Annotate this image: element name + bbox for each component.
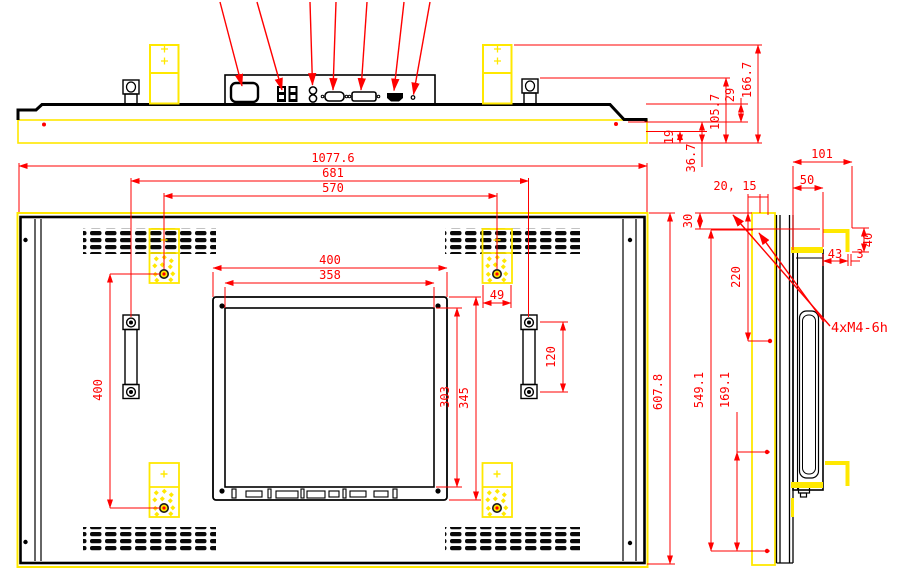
- edge-screw: [23, 540, 27, 544]
- top-view: 19 36.7 29 105.7 166.7: [18, 2, 762, 172]
- dim-bar-height: 29: [723, 88, 737, 102]
- dim-hook-height: 40: [861, 233, 875, 247]
- usb-ports: [277, 86, 298, 102]
- vesa-bracket: [483, 463, 513, 517]
- handle-bracket: [521, 315, 537, 399]
- handle-bracket: [123, 315, 139, 399]
- dim-overall-width: 1077.6: [311, 151, 354, 165]
- dim-handle-pitch: 120: [544, 346, 558, 368]
- rear-view: 1077.6 681 570 400 358 49 400 303: [18, 151, 676, 567]
- bezel-profile: [752, 213, 775, 565]
- connector-panel: [225, 75, 435, 105]
- dim-hook-thickness: 3: [856, 247, 863, 261]
- technical-drawing-page: 19 36.7 29 105.7 166.7: [0, 0, 898, 576]
- chassis-profile: [793, 250, 823, 497]
- reference-dot: [614, 122, 618, 126]
- dim-vesa-vertical: 400: [91, 379, 105, 401]
- dim-vesa-span: 570: [322, 181, 344, 195]
- dim-step-height: 19: [662, 130, 676, 144]
- dim-bracket-offset: 49: [490, 288, 504, 302]
- dim-hook-pitch: 169.1: [718, 372, 732, 408]
- screw-spec-note: 4xM4-6h: [831, 320, 888, 336]
- vent-grille: [83, 527, 216, 553]
- reset-hole: [411, 96, 415, 100]
- hdmi-port: [387, 93, 403, 102]
- bezel-strip: [18, 120, 647, 143]
- dim-depth-total: 101: [811, 147, 833, 161]
- edge-screw: [628, 541, 632, 545]
- dim-cutout-height: 345: [457, 387, 471, 409]
- dim-handle-span: 681: [322, 166, 344, 180]
- dim-port-depth: 105.7: [708, 94, 722, 130]
- top-mount-bracket: [150, 45, 179, 104]
- top-handle-lug: [522, 79, 538, 104]
- dim-panel-width: 358: [319, 268, 341, 282]
- monitor-dimension-drawing: 19 36.7 29 105.7 166.7: [0, 0, 898, 576]
- connector-callout-arrows: [220, 2, 430, 95]
- lcd-active-area: [225, 308, 434, 487]
- dim-panel-height: 303: [438, 386, 452, 408]
- dim-hook-span: 220: [729, 266, 743, 288]
- dim-cutout-width: 400: [319, 253, 341, 267]
- dim-chassis-depth: 50: [800, 173, 814, 187]
- dim-hook-width: 43: [828, 247, 842, 261]
- edge-screw: [23, 238, 27, 242]
- dim-bezel-height: 36.7: [684, 144, 698, 173]
- dim-bracket-depth: 166.7: [740, 62, 754, 98]
- top-view-dimensions: 19 36.7 29 105.7 166.7: [514, 45, 762, 172]
- vga-port: [321, 92, 348, 101]
- side-view-dimensions: 101 50 20, 15 30 220 549.1: [681, 147, 888, 553]
- vesa-bracket: [150, 463, 180, 517]
- dim-panel-gap: 20, 15: [713, 179, 756, 193]
- top-mount-bracket: [483, 45, 512, 104]
- vent-grille: [445, 527, 580, 553]
- top-handle-lug: [123, 80, 139, 105]
- audio-jacks: [309, 87, 316, 102]
- dim-overall-height: 607.8: [651, 374, 665, 410]
- edge-screw: [628, 238, 632, 242]
- dvi-port: [348, 92, 380, 101]
- panel-cutout: [213, 297, 447, 500]
- reference-dot: [42, 123, 46, 127]
- board-connectors: [232, 489, 397, 498]
- power-inlet: [231, 83, 258, 102]
- dim-hook-inset: 30: [681, 214, 695, 228]
- dim-mount-height: 549.1: [692, 372, 706, 408]
- side-view: 101 50 20, 15 30 220 549.1: [681, 147, 888, 565]
